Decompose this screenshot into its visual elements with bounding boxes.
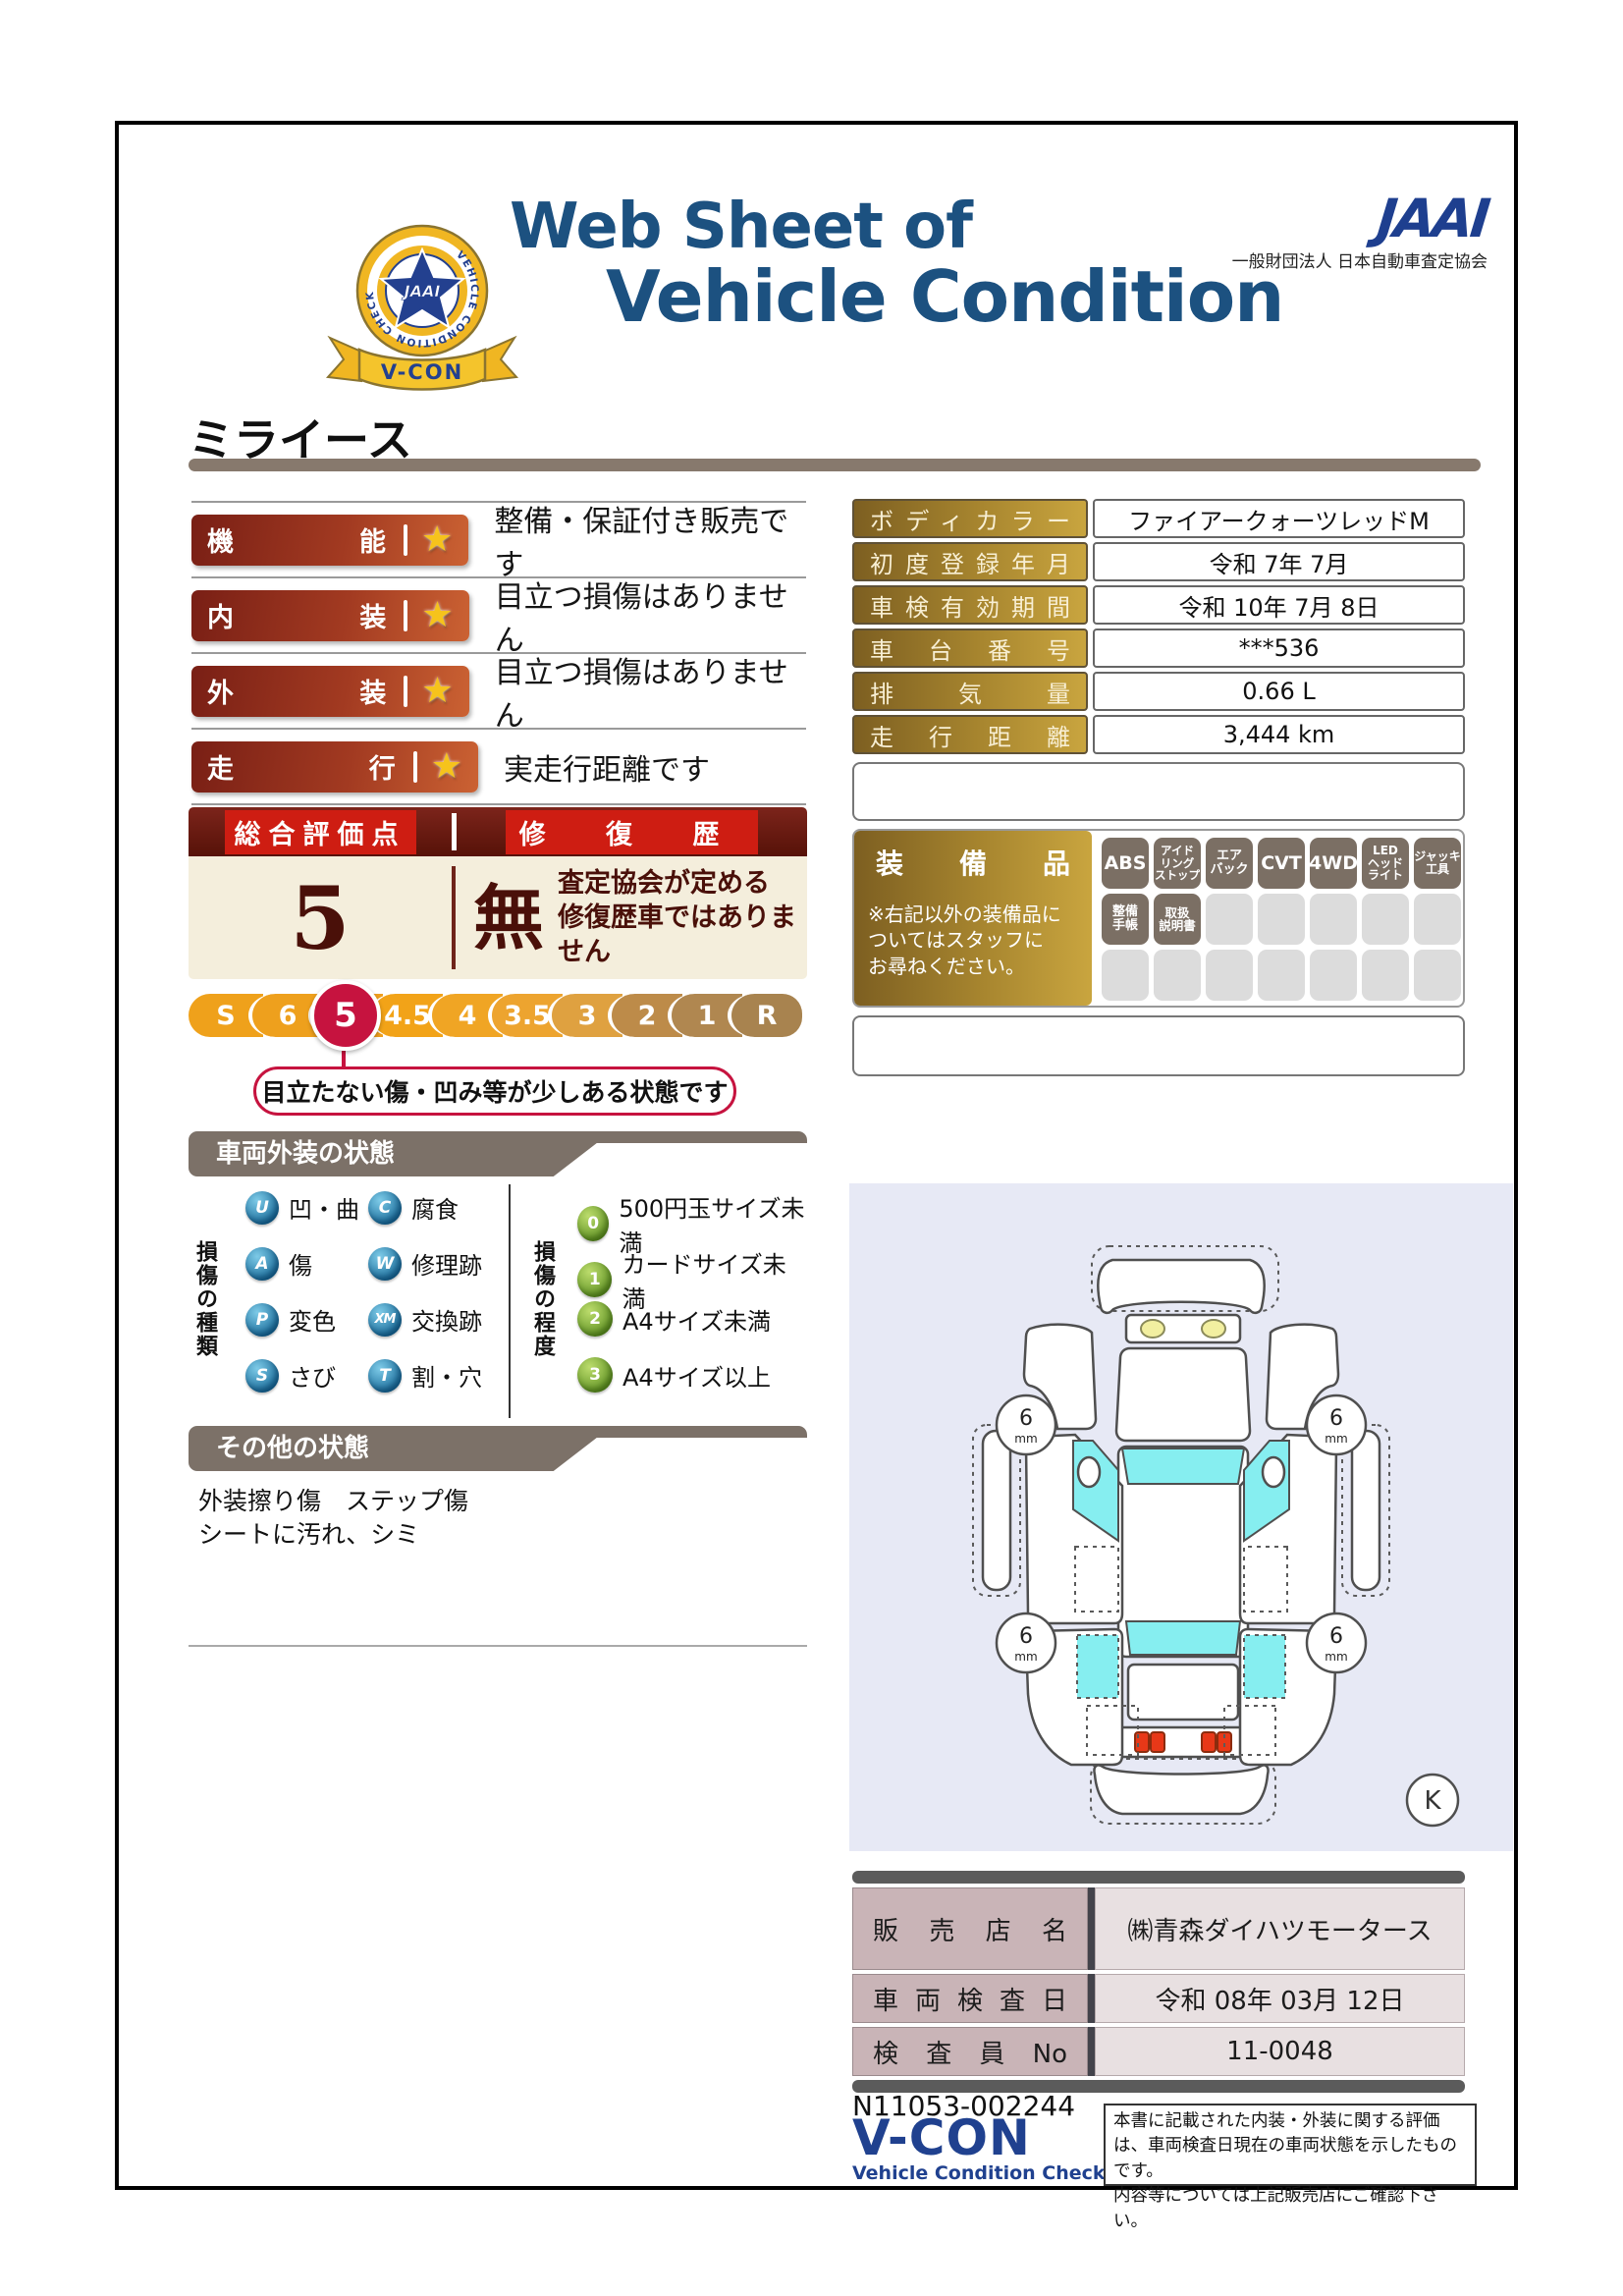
tailgate	[1128, 1665, 1238, 1720]
vcon-seal-icon: VEHICLE CONDITION CHECK SYSTEM JAAI V-CO…	[322, 216, 523, 401]
info-label: ボディカラー	[852, 499, 1088, 538]
dealer-value: 11-0048	[1095, 2027, 1465, 2076]
equipment-grid: ABS アイド リング ストップ エア バック CVT 4WD LED ヘッド …	[1102, 838, 1461, 1001]
info-value: ***536	[1093, 629, 1465, 668]
rating-description: 整備・保証付き販売です	[494, 497, 806, 583]
equipment-badge-empty	[1206, 894, 1253, 945]
repair-history-note: 査定協会が定める 修復歴車ではありません	[558, 866, 807, 969]
title-divider	[189, 459, 1481, 471]
rating-row: 外装 ★ 目立つ損傷はありません	[191, 652, 806, 728]
dealer-label: 検査員No	[852, 2027, 1088, 2076]
equipment-badge-empty	[1310, 950, 1357, 1001]
other-condition-notes: 外装擦り傷 ステップ傷 シートに汚れ、シミ	[198, 1485, 787, 1552]
equipment-badge-empty	[1362, 894, 1409, 945]
grade-callout: 目立たない傷・凹み等が少しある状態です	[253, 1066, 736, 1116]
callout-line	[342, 1051, 346, 1066]
dealer-table-top-bar	[852, 1871, 1465, 1884]
rear-bumper	[1094, 1765, 1268, 1814]
hood	[1116, 1348, 1250, 1441]
empty-note-box	[852, 762, 1465, 821]
car-diagram-svg: 6 mm 6 mm 6 mm 6 mm K	[849, 1183, 1513, 1851]
star-icon: ★	[421, 674, 453, 709]
svg-text:6: 6	[1329, 1624, 1343, 1649]
info-label: 初度登録年月	[852, 542, 1088, 581]
overall-score-block: 総合評価点 修 復 歴 5 無 査定協会が定める 修復歴車ではありません	[189, 807, 807, 979]
table-row: 車両検査日 令和 08年 03月 12日	[852, 1974, 1465, 2023]
svg-text:6: 6	[1019, 1624, 1033, 1649]
tire-rear-right: 6 mm	[1307, 1613, 1366, 1672]
damage-type-icon: U	[245, 1191, 279, 1225]
rear-window	[1126, 1621, 1240, 1655]
damage-legend: 損傷の種類 U凹・曲 A傷 P変色 Sさび C腐食 W修理跡 XM交換跡 T割・…	[189, 1188, 807, 1416]
legend-divider	[509, 1184, 511, 1418]
info-label: 車検有効期間	[852, 585, 1088, 625]
info-value: 令和 7年 7月	[1093, 542, 1465, 581]
rating-label: 外装	[207, 672, 386, 710]
damage-type-icon: XM	[368, 1303, 402, 1337]
rating-box-function: 機能 ★	[191, 515, 468, 566]
equipment-badge: LED ヘッド ライト	[1362, 838, 1409, 889]
rating-separator	[404, 600, 407, 631]
damage-type-icon: T	[368, 1359, 402, 1393]
front-bumper	[1098, 1260, 1264, 1313]
svg-text:mm: mm	[1325, 1650, 1347, 1664]
windshield	[1122, 1449, 1244, 1484]
vcon-logo: V-CON	[852, 2113, 1031, 2162]
damage-type-title: 損傷の種類	[189, 1188, 220, 1409]
dealer-divider	[1088, 1974, 1095, 2023]
info-label: 走行距離	[852, 715, 1088, 754]
vehicle-info-table: ボディカラー ファイアークォーツレッドM 初度登録年月 令和 7年 7月 車検有…	[852, 499, 1465, 758]
equipment-note: ※右記以外の装備品に ついてはスタッフに お尋ねください。	[854, 882, 1092, 979]
score-header-label: 総合評価点	[225, 810, 416, 854]
designation-badge: K	[1407, 1775, 1458, 1826]
star-icon: ★	[421, 598, 453, 633]
info-label: 排気量	[852, 672, 1088, 711]
table-row: 販売店名 ㈱青森ダイハツモータース	[852, 1887, 1465, 1970]
equipment-badge: 整備 手帳	[1102, 894, 1149, 945]
table-row: 排気量 0.66 L	[852, 672, 1465, 711]
rating-box-interior: 内装 ★	[191, 590, 469, 641]
equipment-badge-empty	[1414, 894, 1461, 945]
left-side-panels	[973, 1325, 1138, 1765]
svg-text:mm: mm	[1014, 1650, 1037, 1664]
equipment-badge-empty	[1414, 950, 1461, 1001]
scale-segment: R	[728, 994, 802, 1037]
headlight-icon	[1141, 1320, 1164, 1338]
equipment-badge: アイド リング ストップ	[1154, 838, 1201, 889]
tire-front-left: 6 mm	[997, 1395, 1055, 1454]
svg-text:mm: mm	[1325, 1432, 1347, 1446]
svg-text:6: 6	[1329, 1406, 1343, 1431]
headlight-icon	[1202, 1320, 1225, 1338]
dealer-table: 販売店名 ㈱青森ダイハツモータース 車両検査日 令和 08年 03月 12日 検…	[852, 1871, 1465, 2093]
info-value: 3,444 km	[1093, 715, 1465, 754]
rating-row: 機能 ★ 整備・保証付き販売です	[191, 501, 806, 576]
equipment-badge-empty	[1206, 950, 1253, 1001]
dealer-divider	[1088, 2027, 1095, 2076]
rating-separator	[404, 676, 407, 707]
star-icon: ★	[431, 749, 462, 785]
rating-rows: 機能 ★ 整備・保証付き販売です 内装 ★ 目立つ損傷はありません 外装 ★ 目…	[191, 501, 806, 805]
grade-scale: S 6 4.5 4 3.5 3 2 1 R	[189, 994, 802, 1037]
overall-score-header: 総合評価点 修 復 歴	[189, 807, 807, 856]
equipment-badge-empty	[1258, 894, 1305, 945]
sheet-title-line1: Web Sheet of	[510, 191, 972, 263]
table-row: 初度登録年月 令和 7年 7月	[852, 542, 1465, 581]
equipment-badge: CVT	[1258, 838, 1305, 889]
equipment-badge: 4WD	[1310, 838, 1357, 889]
car-damage-diagram: 6 mm 6 mm 6 mm 6 mm K	[849, 1183, 1513, 1851]
jaai-logo-block: JAAI 一般財団法人 日本自動車査定協会	[1159, 192, 1488, 272]
damage-degree-icon: 3	[577, 1357, 613, 1393]
svg-text:mm: mm	[1014, 1432, 1037, 1446]
table-row: 車台番号 ***536	[852, 629, 1465, 668]
damage-type-icon: S	[245, 1359, 279, 1393]
overall-score-body: 5 無 査定協会が定める 修復歴車ではありません	[189, 856, 807, 979]
damage-degree-icon: 0	[577, 1206, 609, 1241]
rating-label: 機能	[207, 520, 386, 559]
svg-text:6: 6	[1019, 1406, 1033, 1431]
rating-separator	[413, 751, 417, 783]
damage-degree-title: 損傷の程度	[526, 1188, 558, 1409]
damage-degree-icon: 2	[577, 1301, 613, 1337]
rating-label: 内装	[207, 596, 386, 634]
rating-description: 目立つ損傷はありません	[495, 648, 806, 735]
empty-note-box	[852, 1015, 1465, 1076]
dealer-divider	[1088, 1887, 1095, 1970]
seal-star-text: JAAI	[402, 282, 441, 301]
damage-type-icon: C	[368, 1191, 402, 1225]
table-row: ボディカラー ファイアークォーツレッドM	[852, 499, 1465, 538]
jaai-logo: JAAI	[1375, 192, 1489, 246]
equipment-section: 装備品 ※右記以外の装備品に ついてはスタッフに お尋ねください。 ABS アイ…	[852, 829, 1465, 1008]
svg-text:K: K	[1424, 1786, 1441, 1816]
selected-grade-marker: 5	[310, 980, 381, 1051]
table-row: 検査員No 11-0048	[852, 2027, 1465, 2076]
damage-degree-icon: 1	[577, 1262, 612, 1297]
equipment-badge-empty	[1362, 950, 1409, 1001]
equipment-badge-empty	[1154, 950, 1201, 1001]
equipment-title-panel: 装備品 ※右記以外の装備品に ついてはスタッフに お尋ねください。	[854, 831, 1092, 1006]
rating-row: 内装 ★ 目立つ損傷はありません	[191, 576, 806, 652]
tire-rear-left: 6 mm	[997, 1613, 1055, 1672]
rating-description: 実走行距離です	[504, 745, 710, 789]
rating-description: 目立つ損傷はありません	[495, 573, 806, 659]
taillight-icon	[1202, 1732, 1216, 1752]
dealer-label: 販売店名	[852, 1887, 1088, 1970]
damage-type-icon: P	[245, 1303, 279, 1337]
table-row: 車検有効期間 令和 10年 7月 8日	[852, 585, 1465, 625]
rating-box-mileage: 走行 ★	[191, 741, 478, 793]
right-side-panels	[1224, 1325, 1389, 1765]
dealer-value: ㈱青森ダイハツモータース	[1095, 1887, 1465, 1970]
dealer-label: 車両検査日	[852, 1974, 1088, 2023]
rating-box-exterior: 外装 ★	[191, 666, 469, 717]
info-value: 令和 10年 7月 8日	[1093, 585, 1465, 625]
damage-type-icon: W	[368, 1247, 402, 1281]
star-icon: ★	[421, 522, 453, 558]
rating-label: 走行	[207, 747, 396, 786]
info-label: 車台番号	[852, 629, 1088, 668]
info-value: 0.66 L	[1093, 672, 1465, 711]
equipment-badge: 取扱 説明書	[1154, 894, 1201, 945]
disclaimer-box: 本書に記載された内装・外装に関する評価は、車両検査日現在の車両状態を示したもので…	[1104, 2104, 1477, 2186]
equipment-badge: エア バック	[1206, 838, 1253, 889]
repair-header-label: 修 復 歴	[506, 810, 759, 854]
overall-score-value: 5	[189, 856, 452, 979]
equipment-badge-empty	[1258, 950, 1305, 1001]
dealer-value: 令和 08年 03月 12日	[1095, 1974, 1465, 2023]
equipment-badge-empty	[1102, 950, 1149, 1001]
info-value: ファイアークォーツレッドM	[1093, 499, 1465, 538]
equipment-badge: ABS	[1102, 838, 1149, 889]
repair-history-value: 無	[473, 883, 544, 954]
damage-type-icon: A	[245, 1247, 279, 1281]
taillight-icon	[1151, 1732, 1164, 1752]
vehicle-condition-sheet: VEHICLE CONDITION CHECK SYSTEM JAAI V-CO…	[0, 0, 1623, 2296]
seal-banner-text: V-CON	[381, 360, 463, 384]
table-row: 走行距離 3,444 km	[852, 715, 1465, 754]
jaai-subtitle: 一般財団法人 日本自動車査定協会	[1159, 247, 1488, 272]
equipment-title: 装備品	[854, 831, 1092, 882]
tire-front-right: 6 mm	[1307, 1395, 1366, 1454]
equipment-badge-empty	[1310, 894, 1357, 945]
equipment-badge: ジャッキ 工具	[1414, 838, 1461, 889]
rating-row: 走行 ★ 実走行距離です	[191, 728, 806, 805]
divider-line	[189, 1645, 807, 1647]
rating-separator	[404, 524, 407, 556]
